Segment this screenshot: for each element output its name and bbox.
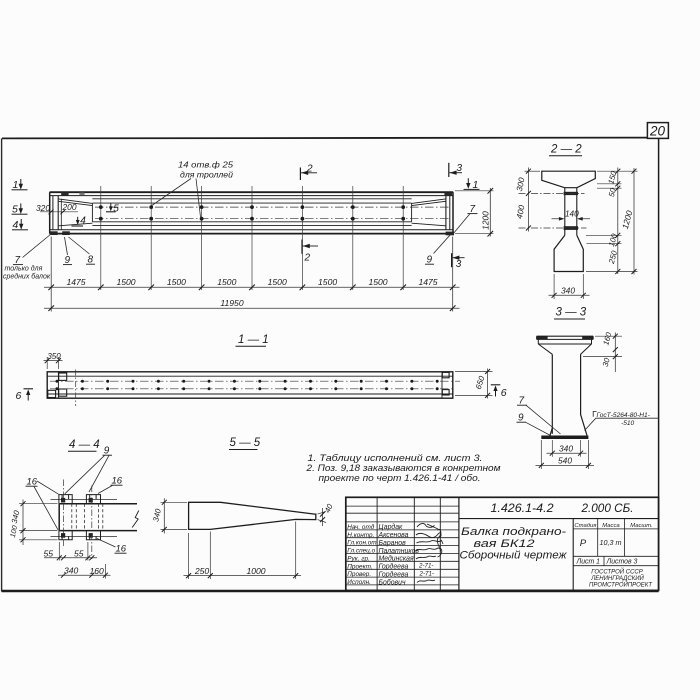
svg-text:Листов 3: Листов 3: [606, 559, 638, 566]
svg-text:11950: 11950: [220, 298, 243, 308]
svg-text:Мединская: Мединская: [379, 555, 414, 563]
svg-text:Гл.спец.о: Гл.спец.о: [347, 548, 375, 555]
svg-text:ГОССТРОЙ СССР: ГОССТРОЙ СССР: [591, 568, 643, 576]
svg-text:1500: 1500: [368, 277, 387, 287]
svg-text:5: 5: [12, 203, 18, 215]
svg-text:Н.контр.: Н.контр.: [347, 532, 374, 539]
svg-text:55: 55: [74, 549, 84, 559]
svg-text:340: 340: [561, 286, 575, 296]
svg-text:Провер.: Провер.: [347, 571, 371, 578]
svg-text:350: 350: [47, 352, 61, 361]
svg-text:1 — 1: 1 — 1: [238, 334, 269, 346]
svg-text:1500: 1500: [318, 277, 337, 287]
svg-text:1500: 1500: [116, 277, 135, 287]
svg-text:Гордеева: Гордеева: [379, 570, 409, 578]
svg-text:1475: 1475: [66, 277, 85, 287]
svg-text:ЛЕНИНГРАДСКИЙ: ЛЕНИНГРАДСКИЙ: [590, 574, 644, 582]
svg-text:1500: 1500: [167, 277, 186, 287]
svg-text:2-71-: 2-71-: [419, 570, 434, 577]
svg-text:4: 4: [80, 216, 86, 227]
svg-text:6: 6: [501, 387, 507, 399]
svg-text:4 — 4: 4 — 4: [69, 439, 100, 451]
svg-text:1500: 1500: [268, 277, 287, 287]
svg-text:340: 340: [559, 443, 573, 453]
svg-text:5 — 5: 5 — 5: [230, 437, 261, 449]
svg-text:1. Таблицу исполнений см. лис: 1. Таблицу исполнений см. лист 3.: [308, 453, 483, 463]
svg-text:200: 200: [62, 202, 77, 212]
svg-text:140: 140: [565, 210, 579, 219]
svg-text:только для: только для: [5, 265, 43, 273]
svg-text:250: 250: [194, 566, 210, 576]
svg-text:1.426.1-4.2: 1.426.1-4.2: [491, 501, 554, 515]
svg-text:1475: 1475: [418, 277, 437, 287]
svg-text:2: 2: [304, 253, 311, 264]
svg-text:Исполн.: Исполн.: [347, 579, 371, 586]
svg-text:6: 6: [16, 390, 22, 402]
svg-text:Балка подкрано-: Балка подкрано-: [461, 526, 566, 538]
svg-text:Цардак: Цардак: [379, 523, 404, 531]
svg-text:160: 160: [90, 566, 105, 576]
svg-text:2.000 СБ.: 2.000 СБ.: [581, 501, 634, 515]
svg-text:2: 2: [306, 164, 313, 175]
svg-text:3: 3: [456, 259, 462, 270]
svg-text:2-71-: 2-71-: [418, 563, 433, 570]
svg-text:вая БК12: вая БК12: [474, 538, 536, 550]
svg-text:проекте по черт 1.426.1-41 / о: проекте по черт 1.426.1-41 / обо.: [319, 473, 481, 483]
svg-text:Стадия: Стадия: [574, 523, 597, 529]
svg-text:Рук. гр.: Рук. гр.: [347, 556, 370, 563]
svg-text:5: 5: [113, 203, 119, 214]
svg-text:3: 3: [457, 163, 463, 174]
svg-text:20: 20: [649, 124, 666, 139]
svg-text:55: 55: [44, 549, 54, 559]
svg-text:3 — 3: 3 — 3: [556, 307, 587, 319]
svg-text:Палатников: Палатников: [379, 548, 420, 555]
svg-text:Бобович: Бобович: [379, 578, 406, 586]
svg-text:Лист 1: Лист 1: [576, 559, 601, 566]
svg-text:4: 4: [13, 219, 19, 231]
svg-text:1200: 1200: [481, 211, 491, 230]
svg-text:Аксенова: Аксенова: [378, 532, 409, 539]
svg-text:Масшт.: Масшт.: [630, 523, 653, 529]
svg-text:340: 340: [64, 566, 79, 576]
svg-text:Сборочный чертеж: Сборочный чертеж: [460, 550, 568, 562]
svg-text:1: 1: [13, 179, 19, 191]
svg-text:Р: Р: [580, 538, 587, 549]
svg-text:Проект.: Проект.: [347, 563, 372, 570]
svg-text:1000: 1000: [246, 566, 265, 576]
svg-text:Гл.кон.от: Гл.кон.от: [347, 540, 377, 547]
svg-text:2 — 2: 2 — 2: [550, 144, 582, 156]
svg-text:ГосТ-5264-80-Н1-: ГосТ-5264-80-Н1-: [597, 412, 651, 419]
svg-text:-510: -510: [621, 420, 635, 427]
svg-text:10,3 т: 10,3 т: [600, 538, 622, 547]
svg-text:ПРОМСТРОЙПРОЕКТ: ПРОМСТРОЙПРОЕКТ: [589, 580, 653, 588]
svg-text:средних балок: средних балок: [3, 273, 51, 281]
svg-text:для троллей: для троллей: [180, 170, 233, 180]
svg-text:Нач. отд: Нач. отд: [347, 523, 374, 531]
svg-text:Гордеева: Гордеева: [379, 563, 409, 571]
svg-text:1500: 1500: [217, 277, 236, 287]
svg-text:2. Поз. 9,18 заказываются в ко: 2. Поз. 9,18 заказываются в конкретном: [305, 463, 501, 473]
svg-text:Масса: Масса: [602, 523, 620, 529]
svg-text:540: 540: [558, 456, 572, 466]
svg-text:Баранов: Баранов: [379, 540, 407, 547]
svg-text:14 отв.ф 25: 14 отв.ф 25: [178, 160, 233, 170]
